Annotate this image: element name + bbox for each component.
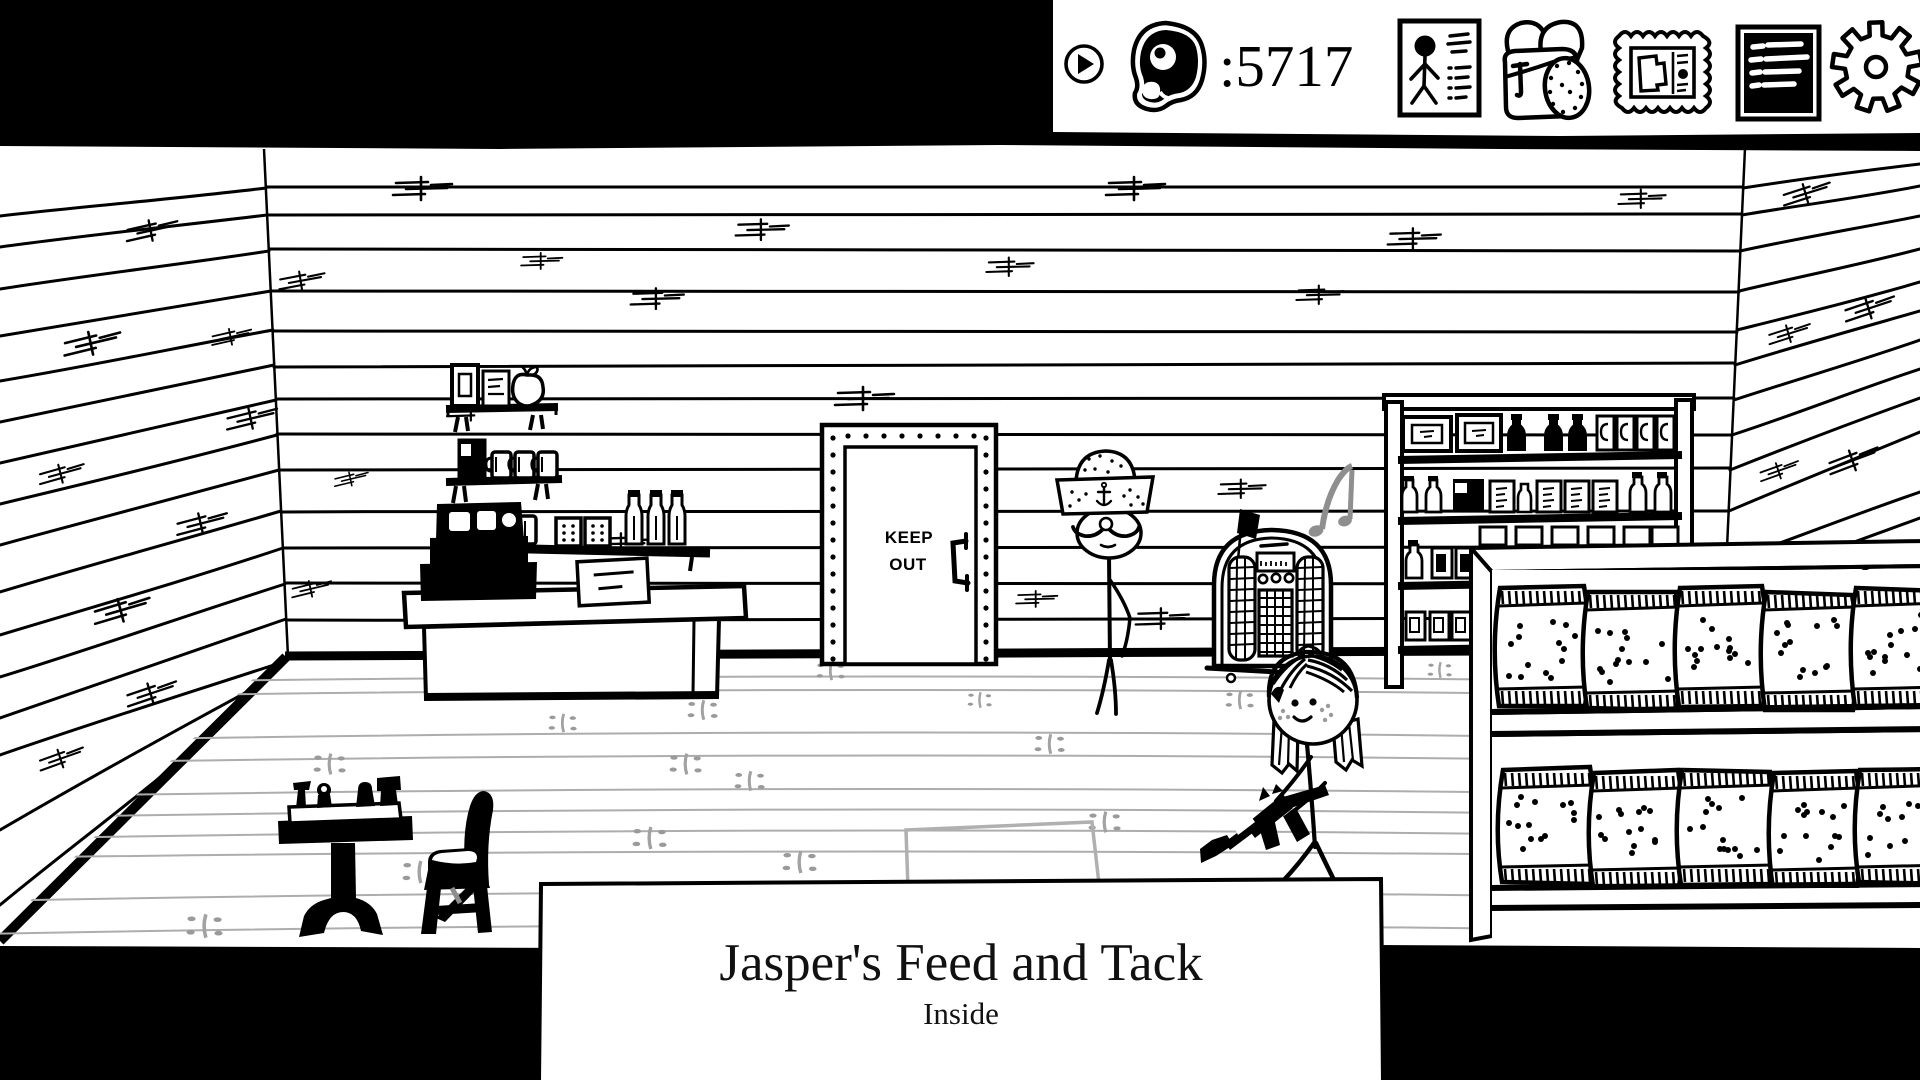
svg-text::5717: :5717 bbox=[1219, 33, 1353, 99]
svg-text:KEEP: KEEP bbox=[885, 528, 933, 547]
svg-text:OUT: OUT bbox=[889, 555, 927, 574]
svg-text:Inside: Inside bbox=[923, 996, 999, 1031]
svg-text:Jasper's Feed and Tack: Jasper's Feed and Tack bbox=[719, 934, 1203, 992]
